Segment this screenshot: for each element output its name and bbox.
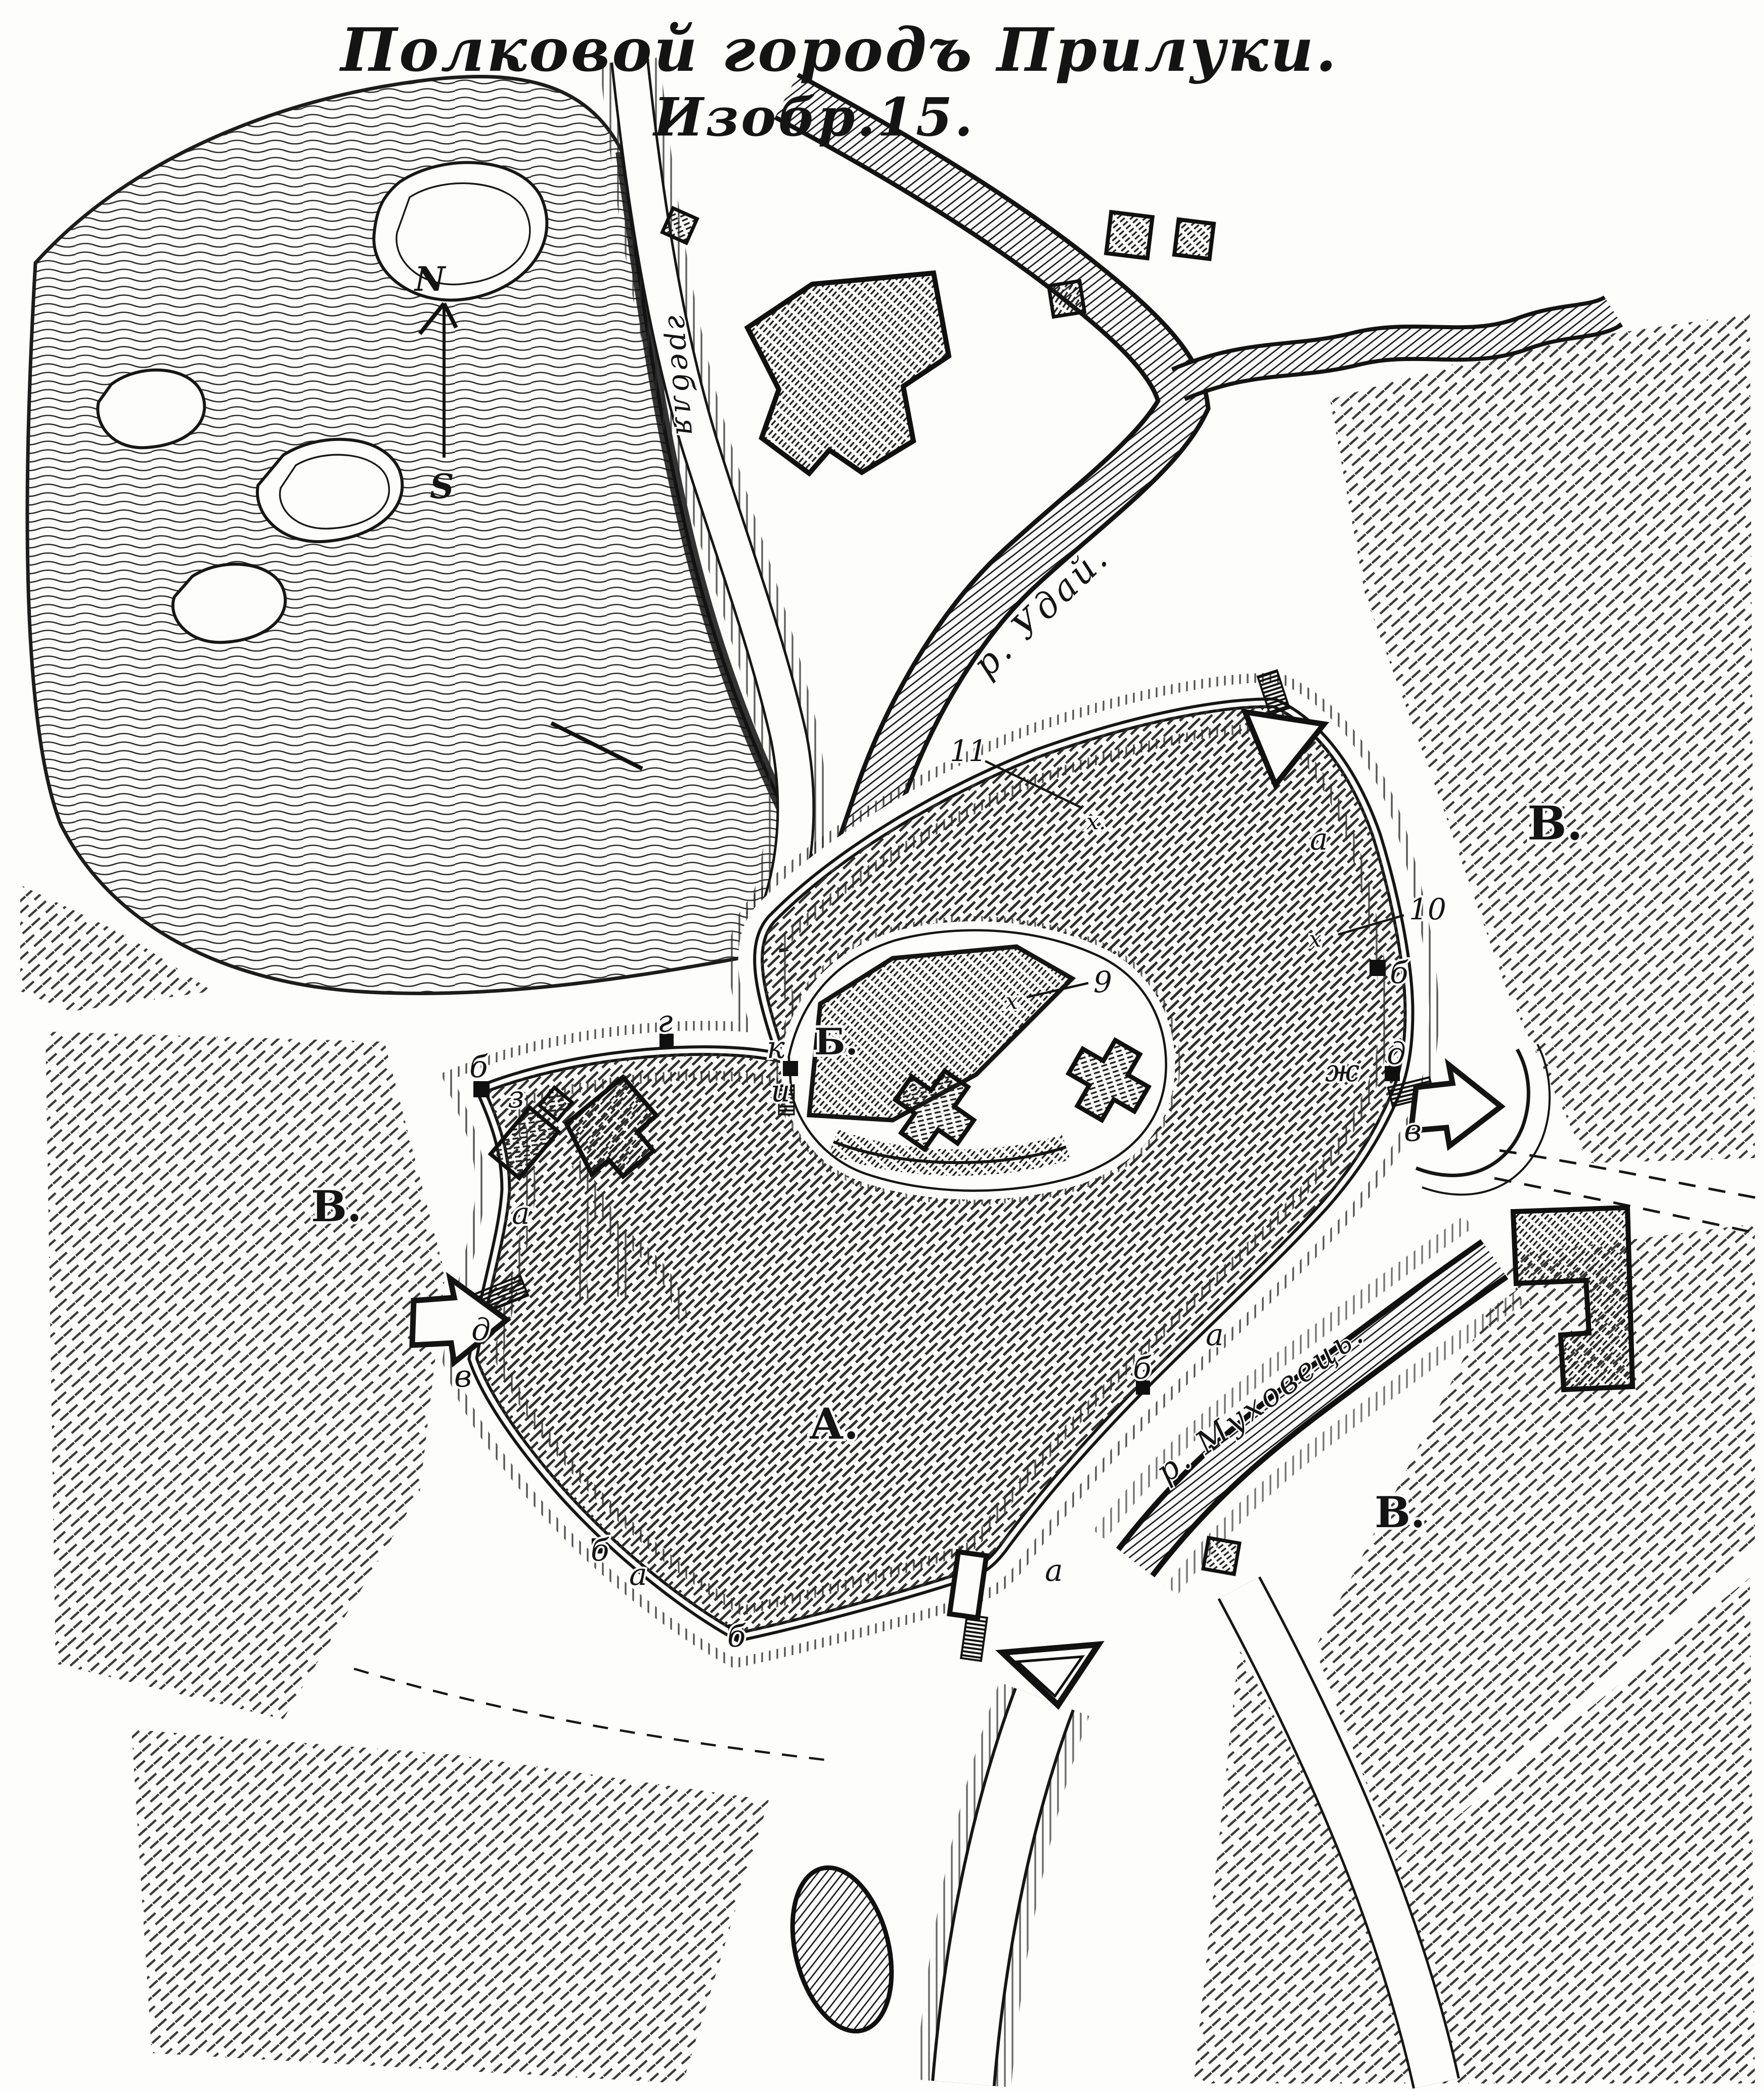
building-sq-3 bbox=[1049, 281, 1085, 317]
field-southwest bbox=[131, 1729, 769, 2083]
map-title: Полковой городъ Прилуки. bbox=[339, 15, 1339, 85]
section-9-number: 9 bbox=[1093, 965, 1112, 999]
mark-b-south-1: б bbox=[591, 1533, 609, 1568]
south-gate-tower bbox=[950, 1552, 987, 1618]
compass-south-label: S bbox=[430, 467, 454, 506]
section-10-mark: х bbox=[1309, 926, 1321, 952]
field-west bbox=[46, 1032, 445, 1719]
label-town-A: А. bbox=[809, 1399, 859, 1449]
section-11-number: 11 bbox=[950, 734, 987, 768]
label-environs-V-w: В. bbox=[311, 1181, 362, 1231]
mark-k-citadel-gate: к bbox=[767, 1030, 785, 1065]
mark-d-east-gate: д bbox=[1387, 1036, 1406, 1072]
building-sq-1 bbox=[1106, 212, 1152, 258]
mark-a-south-gate: а bbox=[1045, 1553, 1063, 1588]
engraved-map-pryluky: N S р. Удай. гребля bbox=[0, 0, 1764, 2090]
mark-zh-east: ж bbox=[1325, 1053, 1359, 1089]
south-gate-bridge bbox=[961, 1615, 987, 1661]
label-environs-V-se: В. bbox=[1375, 1487, 1425, 1537]
road-south bbox=[963, 1699, 1044, 2083]
mark-g-bastion: г bbox=[657, 1004, 673, 1039]
section-9-mark: х bbox=[1005, 989, 1018, 1014]
mark-a-northeast: а bbox=[1310, 822, 1328, 857]
mark-b-east: б bbox=[1390, 955, 1408, 991]
building-sq-2 bbox=[1174, 219, 1214, 259]
building-complex-north bbox=[747, 273, 949, 473]
building-sq-5 bbox=[1203, 1538, 1240, 1574]
mark-b-west-corner: б bbox=[469, 1049, 488, 1085]
compass-north-label: N bbox=[414, 259, 447, 299]
mark-i-citadel-bridge: и bbox=[771, 1074, 790, 1109]
mark-b-south-2: б bbox=[727, 1619, 746, 1654]
map-figure-number: Изобр.15. bbox=[652, 86, 975, 148]
label-citadel-B: Б. bbox=[814, 1020, 858, 1063]
south-gate bbox=[950, 1552, 1098, 1705]
map-canvas: N S р. Удай. гребля bbox=[0, 0, 1764, 2090]
pond-south bbox=[777, 1857, 907, 2042]
mark-a-south: а bbox=[629, 1557, 647, 1592]
mark-b-southeast: б bbox=[1133, 1351, 1152, 1386]
mark-v-east-ravelin: в bbox=[1404, 1113, 1422, 1148]
mark-a-southeast: а bbox=[1206, 1317, 1224, 1353]
boundary-dashed bbox=[354, 1669, 824, 1760]
mark-z-suburb: з bbox=[508, 1080, 524, 1115]
mark-d-west-gate: д bbox=[471, 1312, 491, 1348]
mark-v-west-ravelin: в bbox=[454, 1359, 472, 1394]
section-11-mark: х. bbox=[1086, 809, 1106, 835]
mark-a-west-wall: а bbox=[512, 1196, 530, 1231]
label-environs-V-ne: В. bbox=[1527, 796, 1583, 851]
section-10-number: 10 bbox=[1409, 892, 1446, 926]
